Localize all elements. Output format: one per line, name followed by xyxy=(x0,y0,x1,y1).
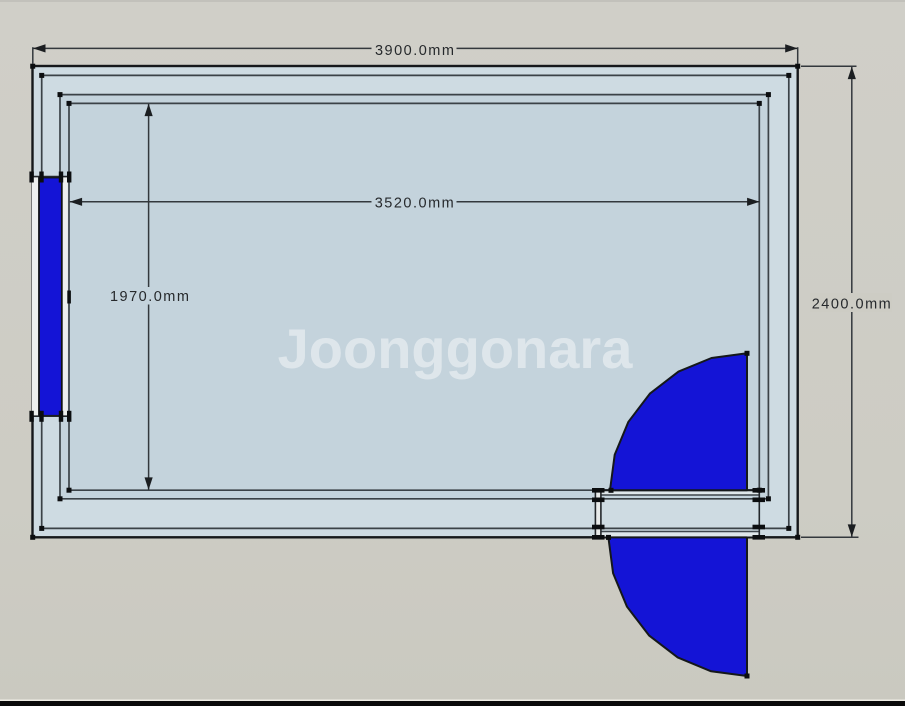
svg-text:3520.0mm: 3520.0mm xyxy=(375,196,456,212)
svg-text:3900.0mm: 3900.0mm xyxy=(375,43,456,59)
svg-text:1970.0mm: 1970.0mm xyxy=(110,289,191,305)
svg-text:2400.0mm: 2400.0mm xyxy=(812,296,893,312)
svg-text:Joonggonara: Joonggonara xyxy=(278,317,634,380)
